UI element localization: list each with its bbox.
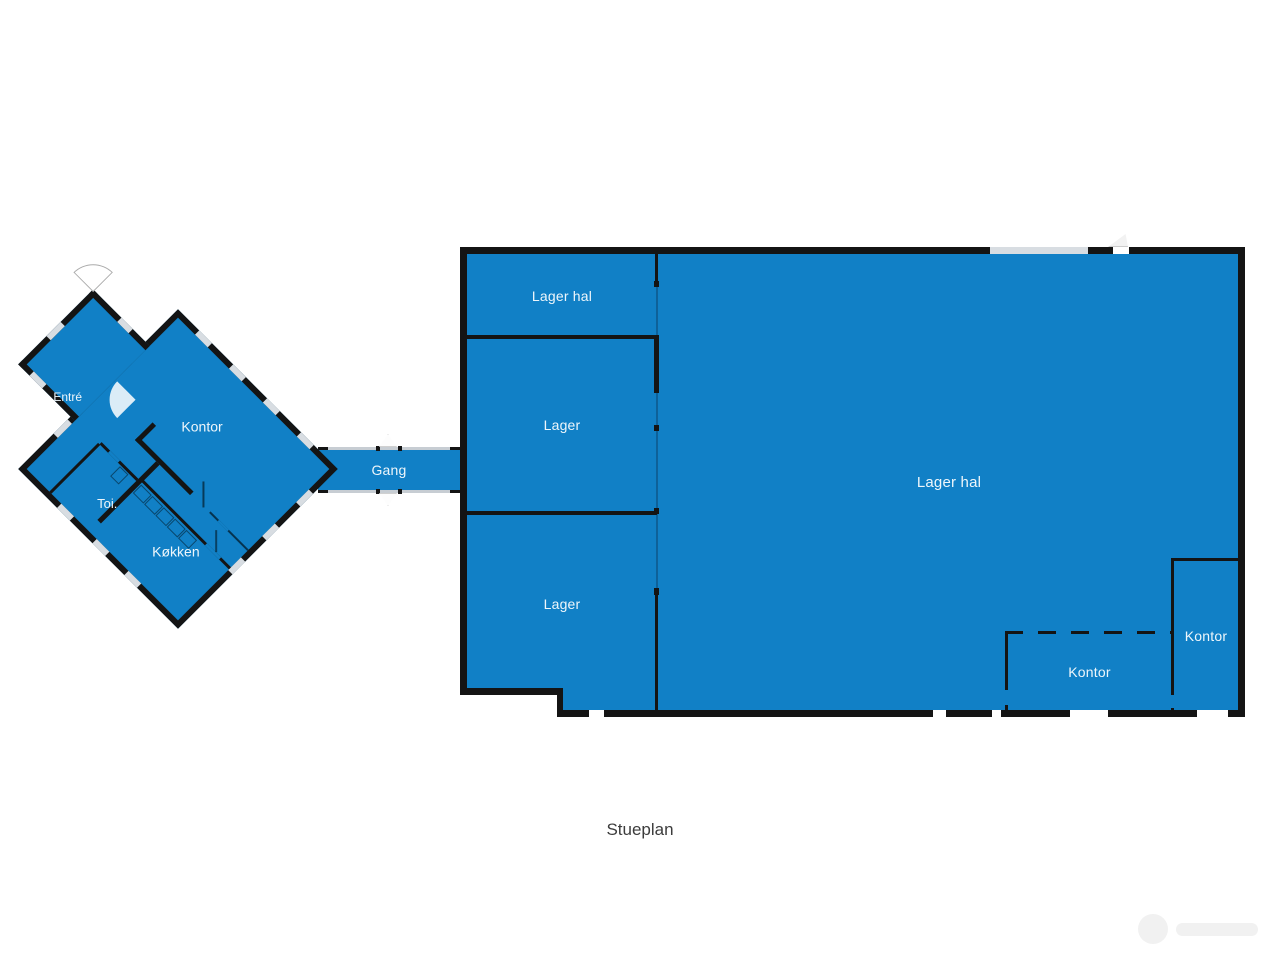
window-opening bbox=[990, 247, 1088, 254]
door-opening bbox=[108, 451, 120, 463]
floor-plan: Lager hal Lager Lager Lager hal Kontor K… bbox=[0, 0, 1280, 960]
room-label-lager-hal-top: Lager hal bbox=[467, 254, 657, 337]
window-opening bbox=[46, 322, 64, 340]
window-opening bbox=[195, 330, 212, 347]
window-opening bbox=[228, 557, 245, 574]
window-opening bbox=[54, 420, 72, 438]
door-swing bbox=[379, 434, 397, 447]
corridor: Gang bbox=[318, 450, 460, 490]
door-swing bbox=[1108, 234, 1128, 247]
door-opening bbox=[1070, 710, 1108, 717]
watermark-icon bbox=[1138, 914, 1168, 944]
window-opening bbox=[57, 504, 74, 521]
watermark-logo bbox=[1130, 910, 1265, 950]
watermark-text-shape bbox=[1176, 923, 1258, 936]
door-opening bbox=[992, 710, 1001, 717]
window-opening bbox=[262, 523, 279, 540]
warehouse-building: Lager hal Lager Lager Lager hal Kontor K… bbox=[460, 247, 1245, 717]
window-opening bbox=[124, 571, 141, 588]
door-opening bbox=[589, 710, 604, 717]
wall-segment bbox=[460, 247, 467, 695]
door-swing bbox=[379, 493, 397, 506]
room-label-toilet: Toi. bbox=[77, 488, 137, 518]
window-opening bbox=[92, 539, 109, 556]
window-opening bbox=[297, 432, 314, 449]
room-label-lager-bottom: Lager bbox=[467, 513, 657, 695]
room-label-kontor: Kontor bbox=[152, 412, 252, 442]
wall-segment bbox=[318, 490, 328, 493]
window-opening bbox=[263, 398, 280, 415]
wall-segment bbox=[450, 490, 460, 493]
window-opening bbox=[117, 318, 133, 334]
door-leaf bbox=[202, 481, 204, 507]
room-label-kontor-corner: Kontor bbox=[1174, 561, 1238, 710]
window-opening bbox=[296, 490, 313, 507]
plan-title: Stueplan bbox=[560, 820, 720, 840]
wall-segment bbox=[557, 710, 1245, 717]
room-label-gang: Gang bbox=[318, 450, 460, 490]
door-opening bbox=[218, 520, 229, 531]
wall-segment bbox=[1238, 247, 1245, 717]
room-label-kontor-inner: Kontor bbox=[1008, 634, 1171, 710]
door-swing bbox=[73, 253, 113, 293]
window-opening bbox=[229, 364, 246, 381]
door-opening bbox=[933, 710, 946, 717]
door-opening bbox=[1197, 710, 1228, 717]
door-opening bbox=[1113, 247, 1129, 254]
window-line bbox=[318, 490, 460, 493]
office-building: Kontor Køkken Toi. Entré bbox=[18, 309, 338, 629]
room-label-entre: Entré bbox=[38, 382, 98, 412]
wall-segment bbox=[49, 443, 100, 494]
room-label-lager-mid: Lager bbox=[467, 337, 657, 513]
room-label-kokken: Køkken bbox=[126, 537, 226, 567]
